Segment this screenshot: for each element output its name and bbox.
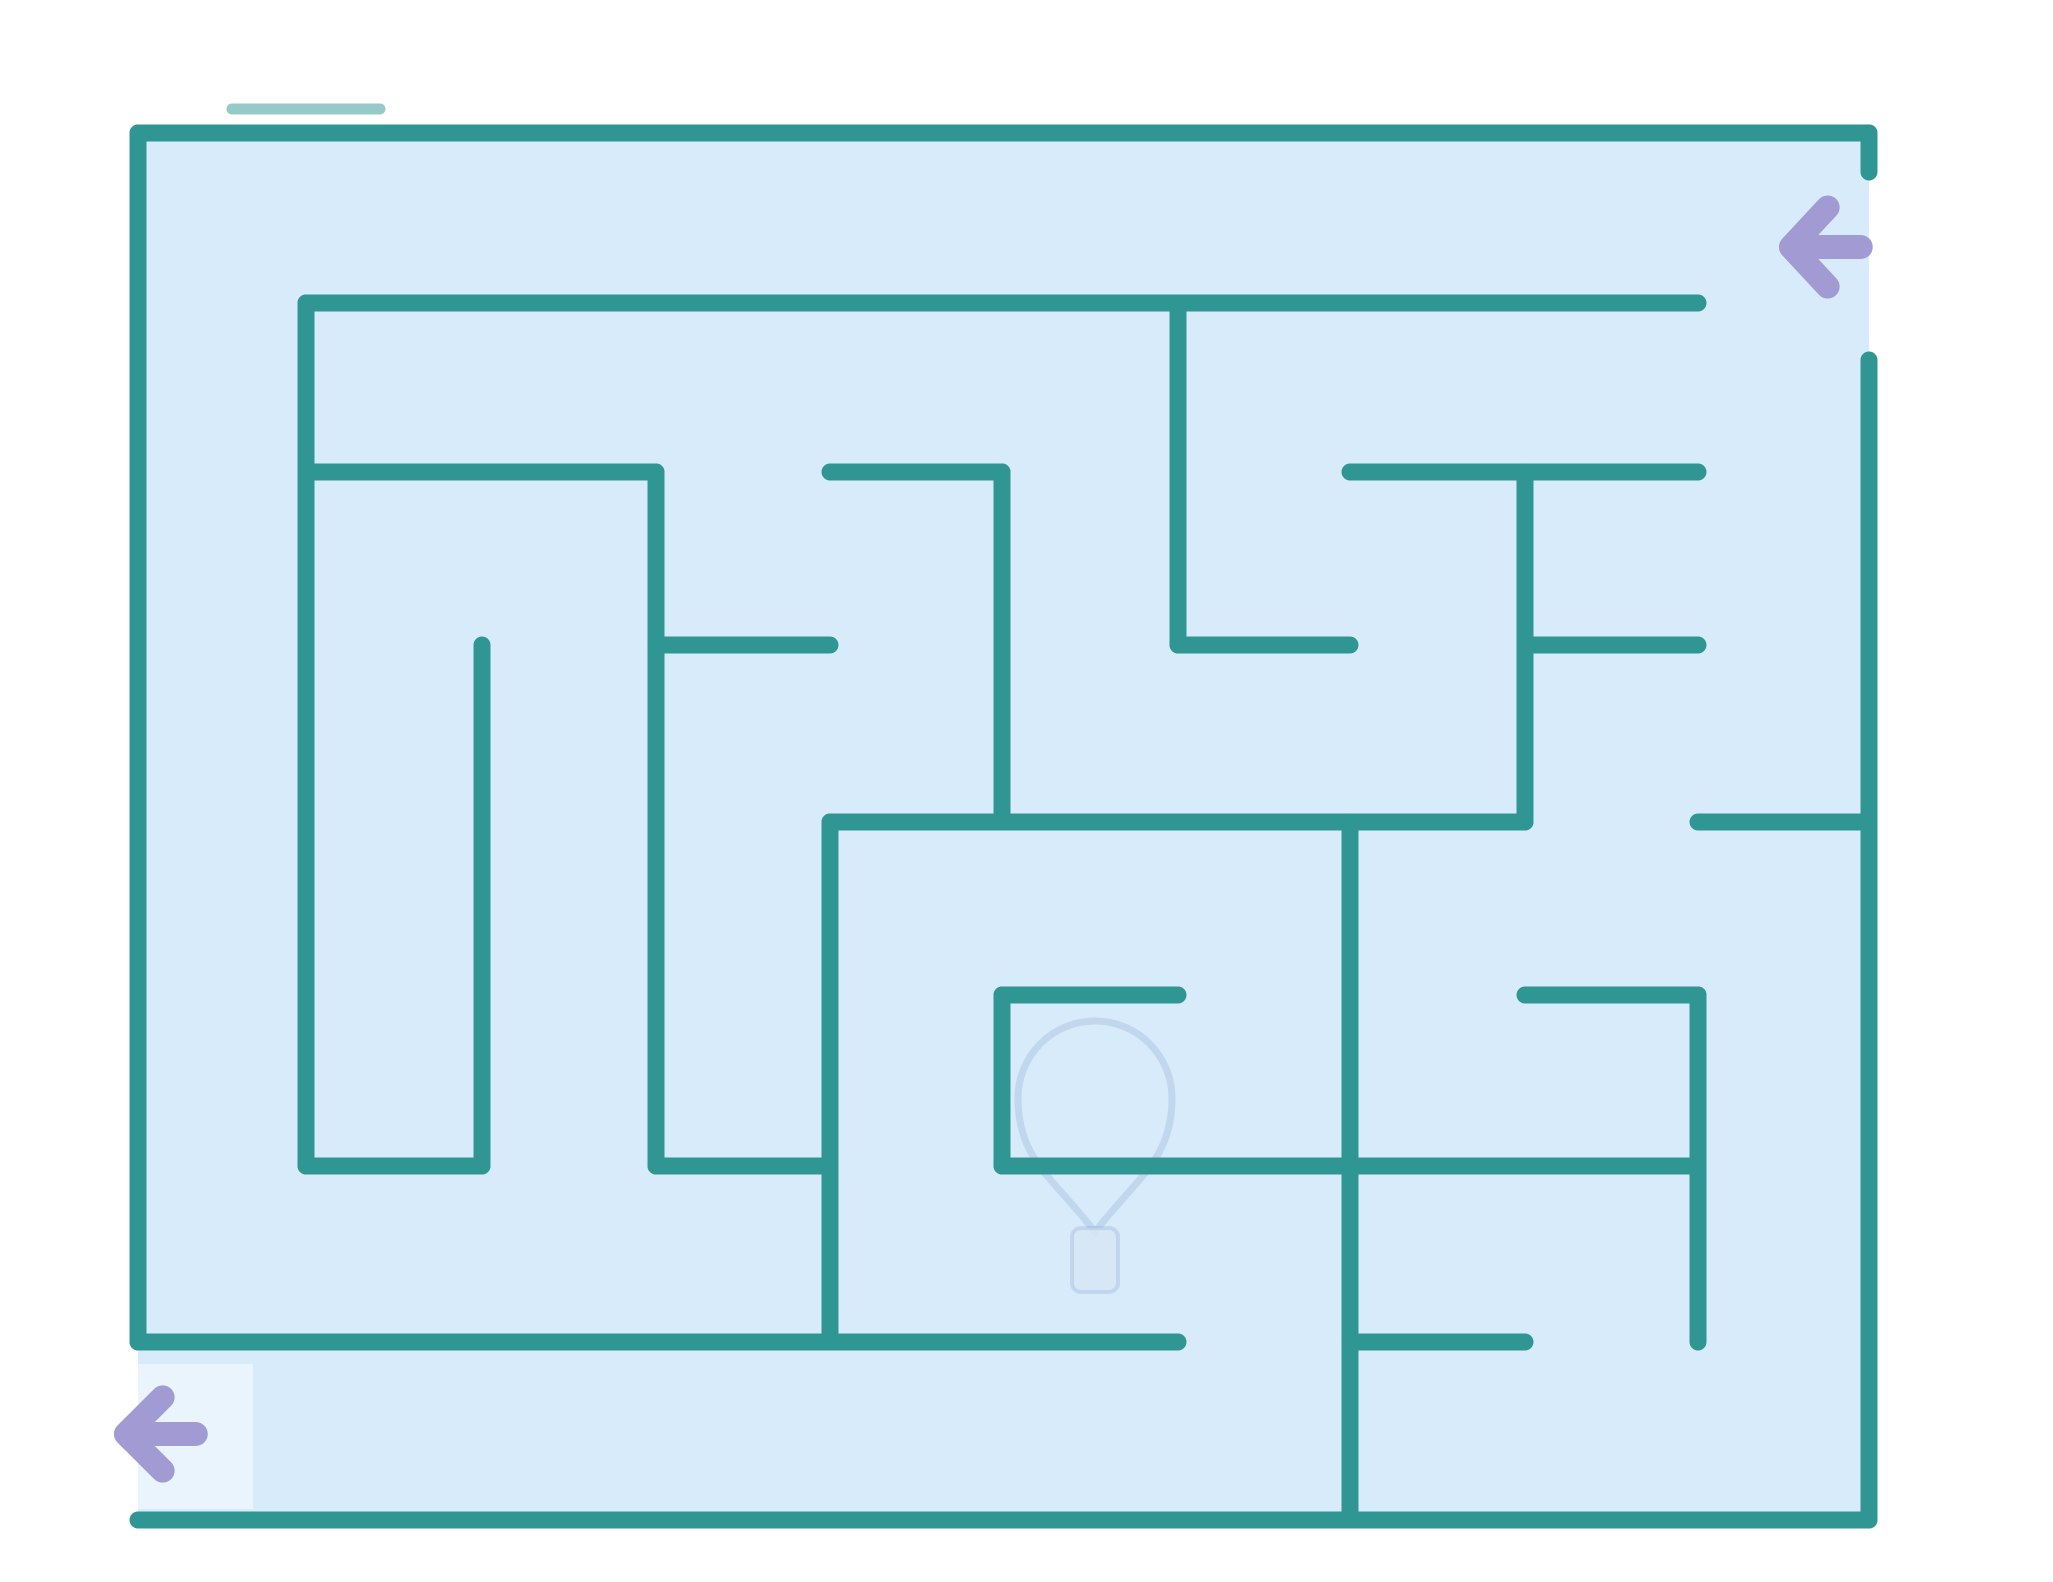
maze-worksheet bbox=[0, 0, 2053, 1582]
balloon-pin-stem bbox=[1072, 1228, 1118, 1292]
maze-drawing bbox=[0, 0, 2053, 1582]
